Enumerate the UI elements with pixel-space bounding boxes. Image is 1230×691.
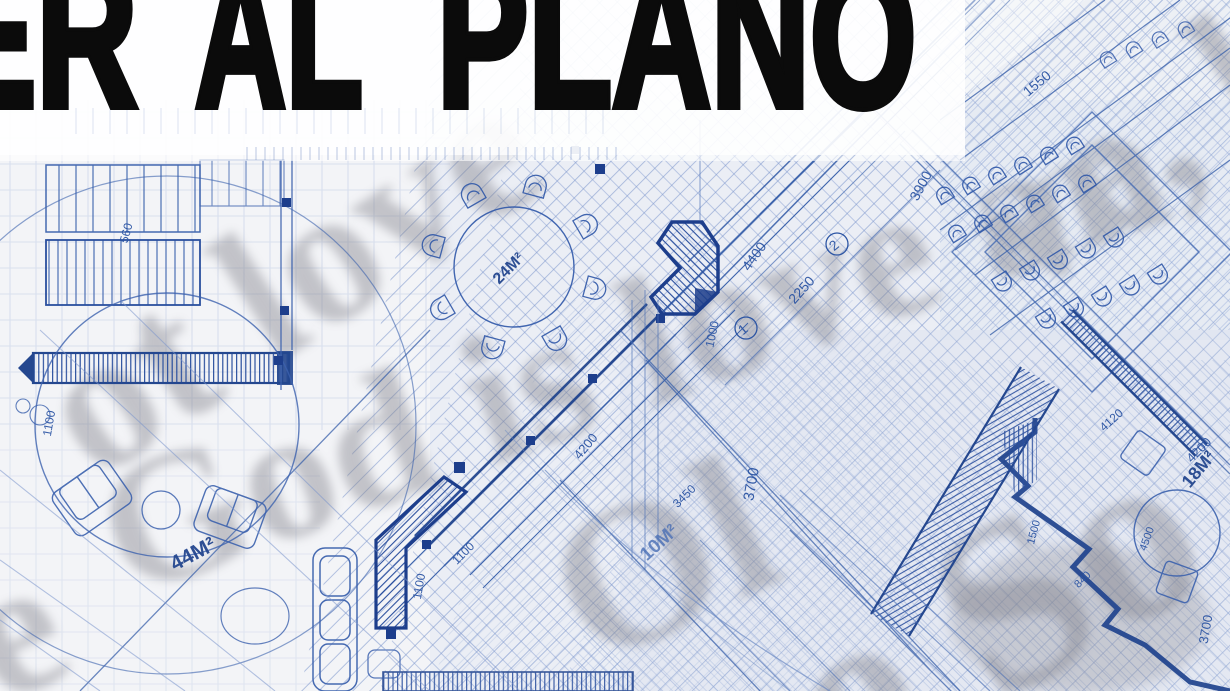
svg-text:AL: AL bbox=[195, 0, 363, 149]
svg-text:PLANO: PLANO bbox=[437, 0, 916, 149]
svg-text:ER: ER bbox=[0, 0, 137, 149]
